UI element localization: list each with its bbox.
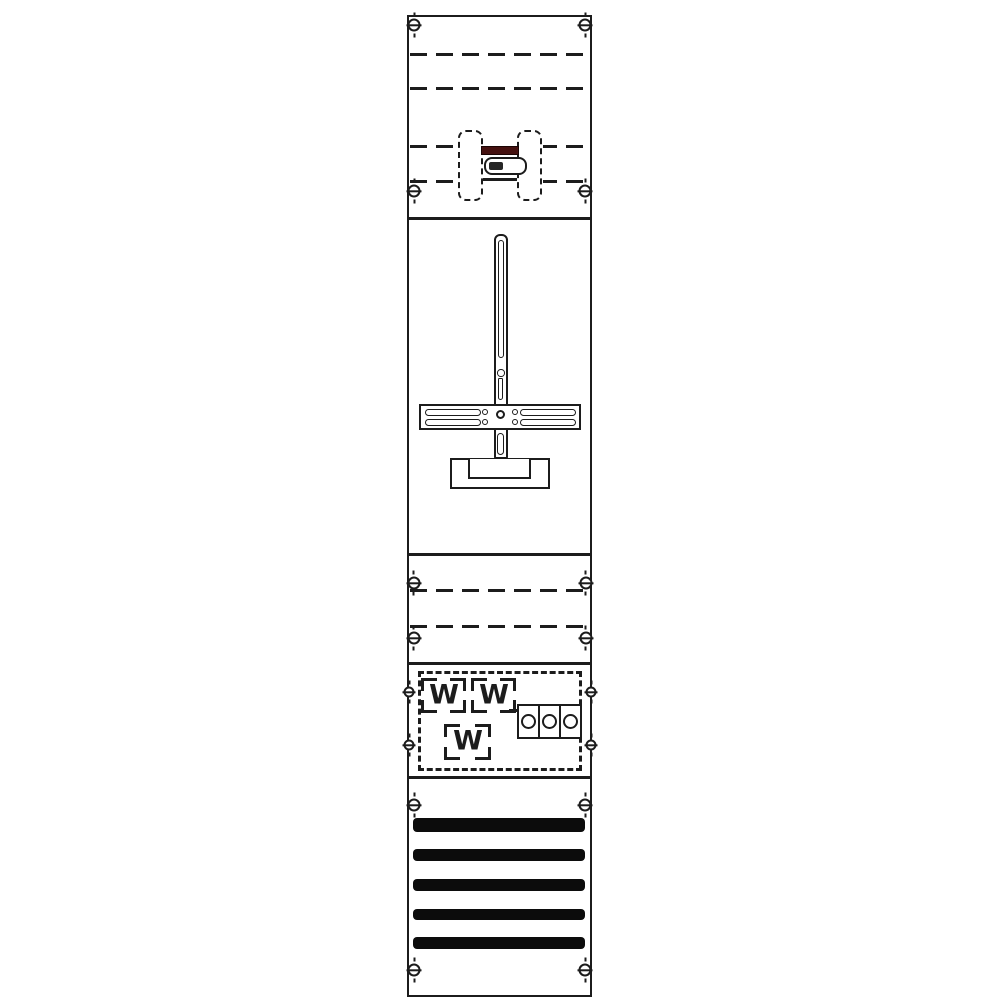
meter-panel-diagram: W W W <box>0 0 1000 1000</box>
rod-slot <box>498 240 505 358</box>
meter-symbol: W <box>421 678 466 713</box>
screw-icon <box>579 19 592 32</box>
busbar-red-link <box>481 146 519 155</box>
dashed-guide-line <box>410 53 589 56</box>
crossbar-slot <box>520 409 576 416</box>
terminal-circle-icon <box>563 714 578 729</box>
clamp-foot-left <box>458 130 483 201</box>
busbar-strip <box>413 909 585 920</box>
busbar-strip <box>413 879 585 891</box>
meter-w-label: W <box>453 727 482 754</box>
screw-icon <box>579 632 592 645</box>
rod-foot-notch <box>468 459 531 479</box>
dashed-guide-line <box>410 87 589 90</box>
screw-icon <box>586 687 597 698</box>
section-divider <box>407 217 592 220</box>
crossbar-slot <box>425 419 481 426</box>
screw-icon <box>407 577 420 590</box>
screw-icon <box>408 185 421 198</box>
dashed-guide-line <box>410 625 589 628</box>
screw-icon <box>579 185 592 198</box>
terminal-cell <box>538 706 559 738</box>
meter-symbol: W <box>444 724 491 760</box>
screw-icon <box>408 799 421 812</box>
screw-icon <box>404 687 415 698</box>
terminal-cell <box>519 706 538 738</box>
terminal-cell <box>559 706 580 738</box>
section-divider <box>407 553 592 556</box>
screw-icon <box>579 964 592 977</box>
crossbar-slot <box>520 419 576 426</box>
terminal-circle-icon <box>521 714 536 729</box>
crossbar-center-hole <box>496 410 506 420</box>
terminal-block <box>517 704 582 740</box>
screw-icon <box>586 740 597 751</box>
clamp-base-line <box>483 178 517 181</box>
terminal-circle-icon <box>542 714 557 729</box>
busbar-strip <box>413 937 585 949</box>
clamp-latch <box>489 162 503 170</box>
busbar-strip <box>413 849 585 861</box>
screw-icon <box>579 577 592 590</box>
screw-icon <box>408 964 421 977</box>
meter-w-label: W <box>479 681 508 708</box>
meter-w-label: W <box>429 681 458 708</box>
crossbar-slot <box>425 409 481 416</box>
section-divider <box>407 776 592 779</box>
busbar-strip <box>413 818 585 832</box>
meter-symbol: W <box>471 678 516 713</box>
screw-icon <box>404 740 415 751</box>
rod-hole <box>497 369 505 377</box>
screw-icon <box>408 19 421 32</box>
screw-icon <box>579 799 592 812</box>
dashed-guide-line <box>410 589 589 592</box>
screw-icon <box>407 632 420 645</box>
rod-keyhole-slot <box>498 378 503 400</box>
rod-lower-slot <box>497 433 505 455</box>
section-divider <box>407 662 592 665</box>
